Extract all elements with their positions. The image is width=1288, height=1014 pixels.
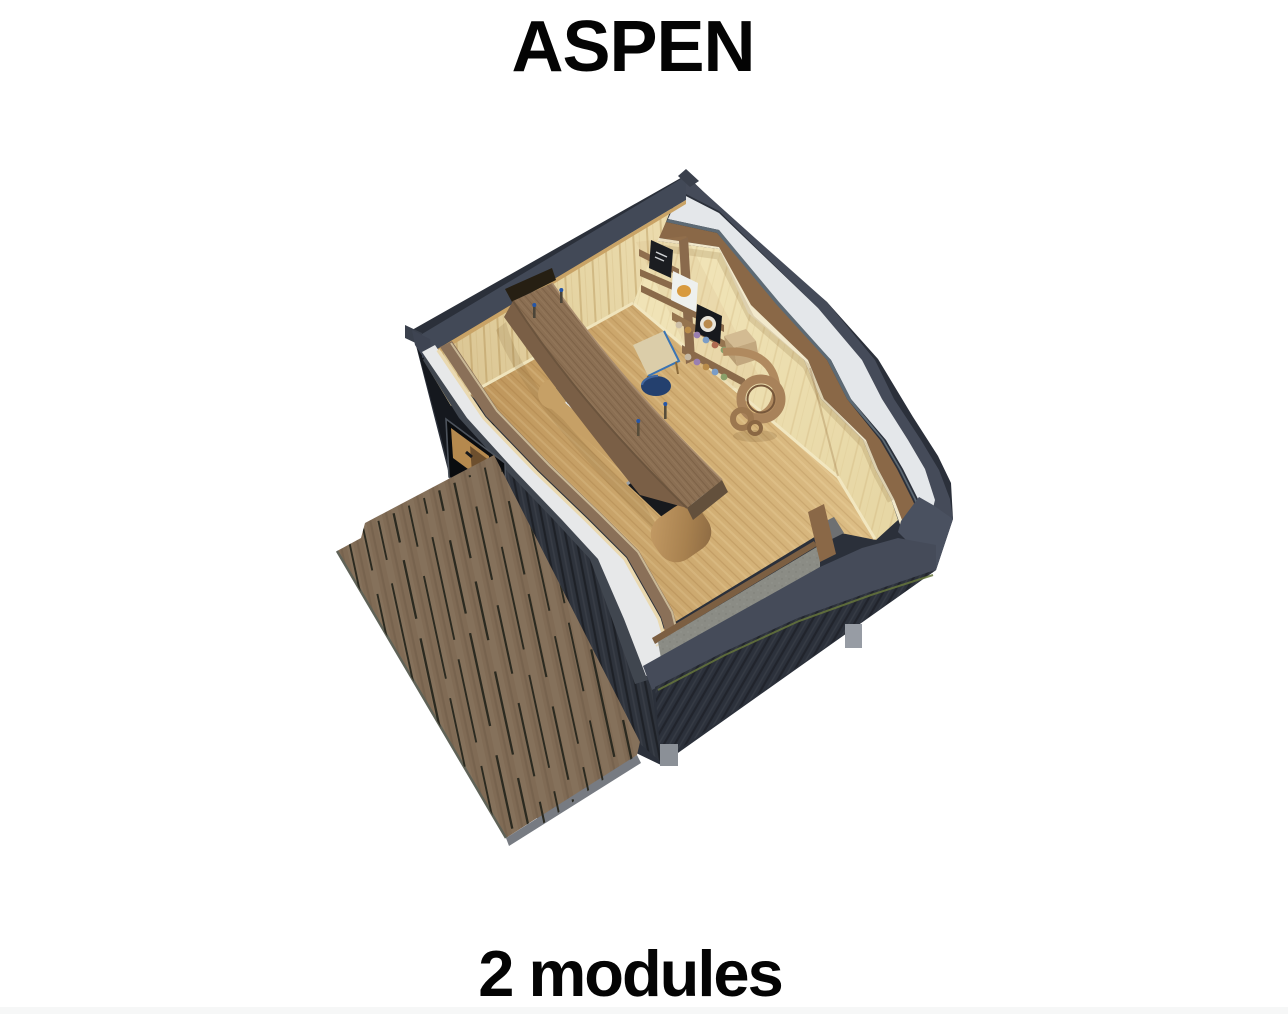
svg-text:2 modules: 2 modules bbox=[478, 937, 781, 1010]
svg-text:ASPEN: ASPEN bbox=[511, 7, 754, 87]
